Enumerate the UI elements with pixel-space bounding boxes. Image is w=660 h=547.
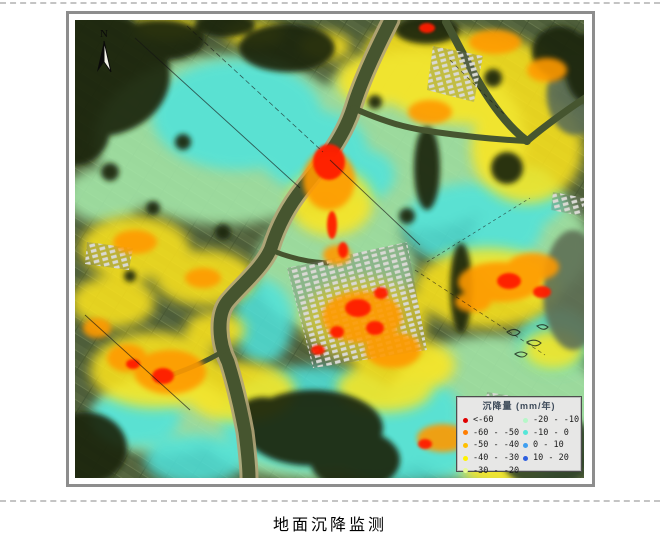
legend-item-label: 10 - 20 (533, 453, 569, 463)
legend-color-dot (523, 456, 528, 461)
legend-item: -20 - -10 (523, 414, 579, 427)
legend-color-dot (463, 443, 468, 448)
map-legend: 沉降量 (mm/年) <-60-60 - -50-50 - -40-40 - -… (456, 396, 582, 472)
legend-color-dot (463, 468, 468, 473)
subsidence-map-figure[interactable]: N 沉降量 (mm/年) <-60-60 - -50-50 - -40-40 -… (66, 11, 595, 487)
north-label: N (100, 28, 108, 40)
table-gridline-bottom (0, 500, 660, 502)
legend-title: 沉降量 (mm/年) (457, 399, 581, 412)
satellite-map: N 沉降量 (mm/年) <-60-60 - -50-50 - -40-40 -… (75, 20, 584, 478)
legend-color-dot (463, 430, 468, 435)
legend-item: -50 - -40 (463, 439, 523, 452)
legend-item: -60 - -50 (463, 427, 523, 440)
legend-color-dot (523, 443, 528, 448)
legend-item-label: -50 - -40 (473, 440, 519, 450)
legend-color-dot (463, 456, 468, 461)
legend-item-label: -10 - 0 (533, 428, 569, 438)
legend-color-dot (523, 430, 528, 435)
legend-item-label: -20 - -10 (533, 415, 579, 425)
legend-columns: <-60-60 - -50-50 - -40-40 - -30-30 - -20… (457, 412, 581, 477)
legend-item: 10 - 20 (523, 452, 579, 465)
legend-item-label: <-60 (473, 415, 493, 425)
legend-item: -40 - -30 (463, 452, 523, 465)
document-page: N 沉降量 (mm/年) <-60-60 - -50-50 - -40-40 -… (0, 0, 660, 547)
legend-item-label: -30 - -20 (473, 466, 519, 476)
legend-color-dot (523, 418, 528, 423)
legend-item: -10 - 0 (523, 427, 579, 440)
legend-item-label: -40 - -30 (473, 453, 519, 463)
legend-item-label: -60 - -50 (473, 428, 519, 438)
legend-item: -30 - -20 (463, 464, 523, 477)
legend-color-dot (463, 418, 468, 423)
legend-item: <-60 (463, 414, 523, 427)
legend-item-label: 0 - 10 (533, 440, 564, 450)
figure-caption: 地面沉降监测 (0, 511, 660, 535)
legend-column-right: -20 - -10-10 - 00 - 1010 - 20 (523, 414, 579, 477)
table-gridline-top (0, 2, 660, 4)
legend-column-left: <-60-60 - -50-50 - -40-40 - -30-30 - -20 (463, 414, 523, 477)
legend-item: 0 - 10 (523, 439, 579, 452)
